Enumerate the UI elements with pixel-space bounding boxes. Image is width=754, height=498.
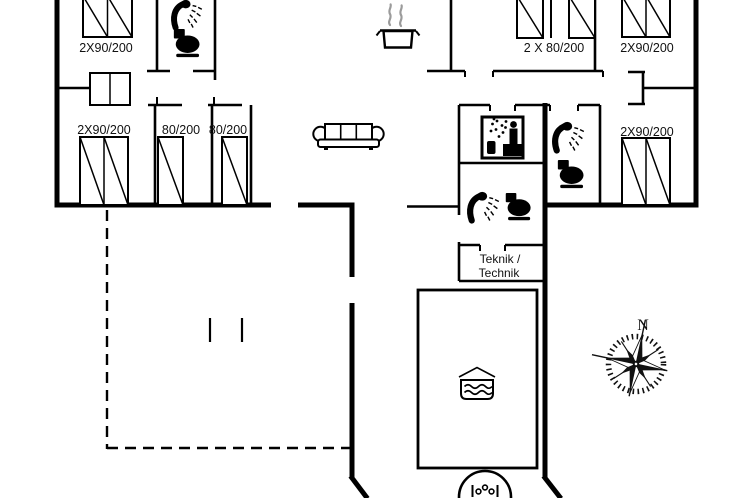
compass-rose-icon: N [585,311,677,403]
shower-icon [174,0,202,28]
whirlpool-icon [459,471,511,498]
bathroom-top-left [174,0,202,57]
bed-size-label: 2X90/200 [79,41,133,55]
bedroom-single-2: 80/200 [209,123,247,205]
kitchen [377,4,420,47]
floorplan-page: 2X90/200 2X90/200 80/200 80/200 2 X 80/2… [0,0,754,498]
bedroom-single-1: 80/200 [158,123,200,205]
bedroom-top-right-2: 2X90/200 [620,0,674,55]
pool-room [418,290,537,498]
bed-size-label: 2X90/200 [620,41,674,55]
technik-room: Teknik / Technik [479,252,521,280]
toilet-icon [558,160,584,188]
terrace [107,210,351,449]
bathroom-right [555,122,584,188]
wardrobe-icon [90,73,130,105]
toilet-icon [506,193,531,220]
steam-icon [389,4,402,26]
bed-size-label: 80/200 [209,123,247,137]
toilet-icon [174,29,200,57]
sauna-icon [482,117,523,158]
bed-size-label: 2 X 80/200 [524,41,585,55]
bed-size-label: 2X90/200 [77,123,131,137]
bathroom-center [470,192,530,221]
floorplan-canvas: 2X90/200 2X90/200 80/200 80/200 2 X 80/2… [0,0,754,498]
cooking-pot-icon [377,31,420,48]
walls-layer [55,0,699,498]
bed-size-label: 2X90/200 [620,125,674,139]
shower-icon [555,122,584,151]
shower-icon [470,192,499,221]
sofa-icon [313,124,383,150]
bedroom-top-left: 2X90/200 [79,0,133,55]
bedroom-mid-right: 2X90/200 [620,125,674,205]
technik-label-line1: Teknik / [480,252,521,266]
compass-north-label: N [637,317,649,334]
bed-size-label: 80/200 [162,123,200,137]
bedroom-top-right-1: 2 X 80/200 [517,0,595,55]
bedroom-mid-left: 2X90/200 [77,123,131,205]
technik-label-line2: Technik [479,266,521,280]
